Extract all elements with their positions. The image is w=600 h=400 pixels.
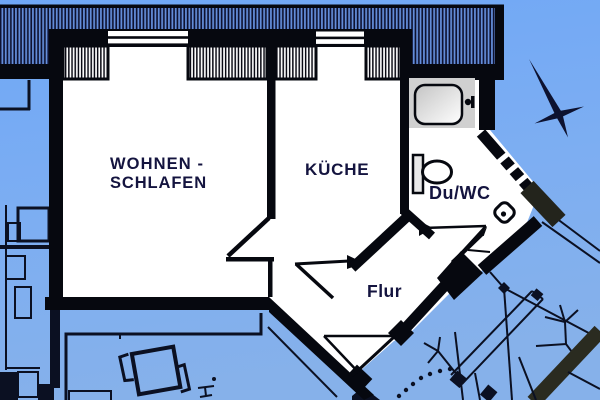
svg-text:KÜCHE: KÜCHE [305,160,369,179]
svg-text:Flur: Flur [367,281,402,301]
svg-text:SCHLAFEN: SCHLAFEN [110,174,207,192]
svg-text:WOHNEN -: WOHNEN - [110,155,204,173]
svg-text:Du/WC: Du/WC [429,183,490,203]
